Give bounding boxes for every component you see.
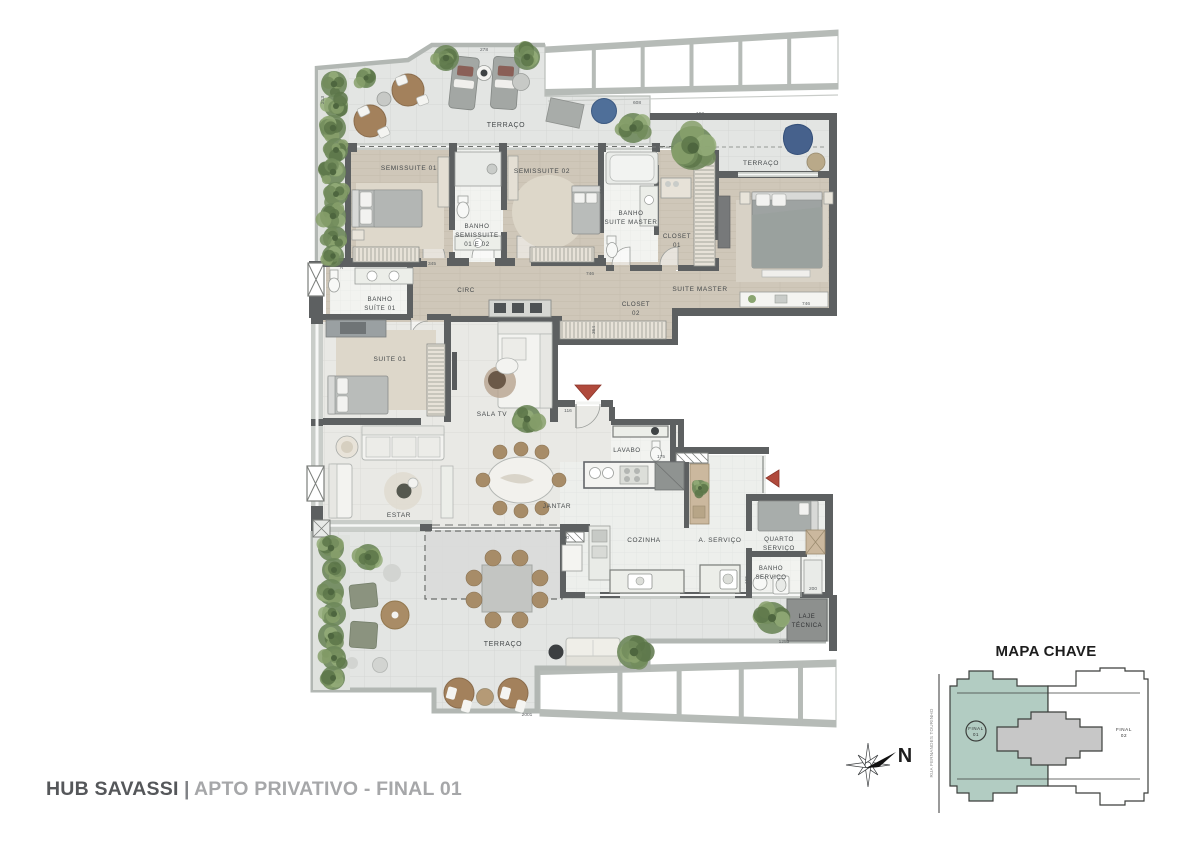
svg-text:1253: 1253	[779, 639, 790, 645]
svg-text:RUA FERNANDES TOURINHO: RUA FERNANDES TOURINHO	[929, 708, 934, 777]
svg-text:SEMISSUITE 02: SEMISSUITE 02	[514, 168, 570, 175]
svg-text:718: 718	[714, 226, 720, 234]
svg-text:FINAL: FINAL	[1116, 727, 1132, 732]
svg-text:162: 162	[696, 111, 704, 117]
svg-text:320: 320	[451, 196, 457, 204]
svg-text:SUÍTE 01: SUÍTE 01	[364, 305, 396, 312]
svg-text:200: 200	[809, 586, 817, 592]
svg-text:FINAL: FINAL	[968, 726, 983, 731]
svg-text:CLOSET: CLOSET	[622, 301, 650, 308]
svg-text:QUARTO: QUARTO	[764, 536, 794, 543]
svg-text:02: 02	[1121, 733, 1127, 738]
svg-text:BANHO: BANHO	[618, 210, 643, 217]
svg-text:2001: 2001	[522, 712, 533, 718]
svg-text:LAJE: LAJE	[799, 614, 816, 620]
svg-text:MAPA CHAVE: MAPA CHAVE	[995, 643, 1096, 660]
svg-text:364: 364	[599, 186, 605, 194]
svg-text:SUITE 01: SUITE 01	[374, 356, 407, 363]
svg-text:SEMISSUITE 01: SEMISSUITE 01	[381, 165, 437, 172]
svg-text:JANTAR: JANTAR	[543, 503, 571, 510]
svg-text:N: N	[898, 745, 912, 767]
svg-text:01: 01	[973, 732, 979, 737]
svg-text:390: 390	[561, 535, 569, 541]
svg-text:364: 364	[591, 326, 597, 334]
svg-text:A. SERVIÇO: A. SERVIÇO	[698, 537, 741, 544]
svg-text:BANHO: BANHO	[367, 296, 392, 303]
svg-text:BANHO: BANHO	[464, 223, 489, 230]
svg-text:175: 175	[657, 454, 665, 460]
svg-text:116: 116	[564, 408, 572, 414]
svg-text:LAVABO: LAVABO	[613, 447, 640, 454]
svg-text:TERRAÇO: TERRAÇO	[484, 641, 522, 648]
svg-text:CLOSET: CLOSET	[663, 233, 691, 240]
svg-text:236: 236	[339, 261, 345, 269]
svg-text:TERRAÇO: TERRAÇO	[487, 122, 525, 129]
svg-text:TÉCNICA: TÉCNICA	[792, 622, 823, 629]
svg-text:ESTAR: ESTAR	[387, 512, 411, 519]
svg-text:SERVIÇO: SERVIÇO	[763, 545, 795, 552]
svg-text:345: 345	[428, 261, 436, 267]
svg-text:COZINHA: COZINHA	[627, 537, 661, 544]
svg-text:SALA TV: SALA TV	[477, 411, 508, 418]
svg-text:SEMISSUITE: SEMISSUITE	[455, 232, 498, 239]
svg-text:SERVIÇO: SERVIÇO	[755, 575, 786, 581]
svg-text:APTO PRIVATIVO - FINAL 01: APTO PRIVATIVO - FINAL 01	[194, 778, 462, 800]
svg-text:|: |	[184, 778, 189, 800]
svg-text:01 E 02: 01 E 02	[464, 241, 490, 248]
svg-text:213: 213	[320, 96, 326, 104]
svg-text:TERRAÇO: TERRAÇO	[743, 160, 779, 167]
svg-text:SUITE MASTER: SUITE MASTER	[672, 286, 727, 293]
svg-text:SUITE MASTER: SUITE MASTER	[605, 219, 658, 226]
svg-text:278: 278	[480, 47, 488, 53]
svg-text:608: 608	[633, 100, 641, 106]
svg-text:746: 746	[586, 271, 594, 277]
svg-text:165: 165	[744, 576, 750, 584]
svg-text:01: 01	[673, 242, 681, 249]
svg-text:BANHO: BANHO	[759, 566, 783, 572]
svg-text:02: 02	[632, 310, 640, 317]
svg-text:CIRC: CIRC	[457, 287, 475, 294]
svg-text:HUB SAVASSI: HUB SAVASSI	[46, 778, 179, 800]
svg-text:746: 746	[802, 301, 810, 307]
